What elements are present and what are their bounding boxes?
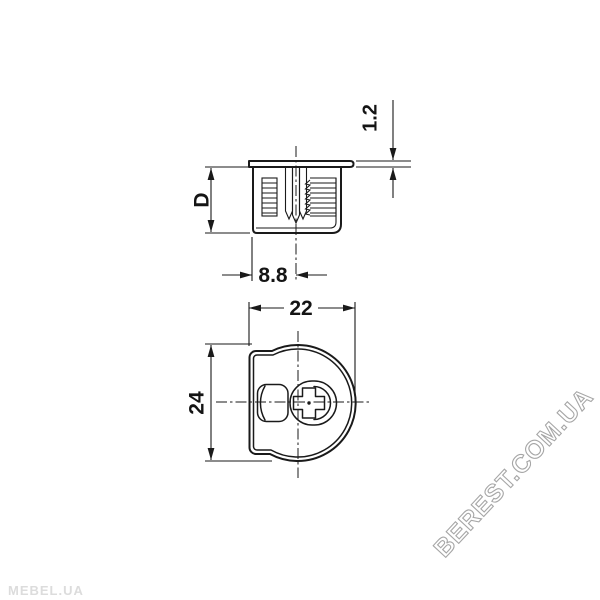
left-rib-block (262, 178, 277, 216)
watermark-berest-com-ua: BEREST.COM.UA (428, 383, 598, 563)
dim-1_2-extension-lines (356, 161, 411, 167)
dim-label-D: D (191, 192, 214, 207)
left-rib-lines (262, 183, 277, 213)
left-thread-ribs (262, 178, 277, 216)
dimension-width: 22 (249, 297, 355, 396)
dim-8_8-arrow-right (240, 272, 252, 279)
bore-strip-right (300, 167, 307, 219)
dowel-window-arc (260, 386, 265, 420)
dim-1_2-arrow-down (390, 148, 397, 160)
body-outline (253, 167, 341, 233)
dim-1_2-arrow-up (390, 168, 397, 180)
dim-22-arrow-left (249, 305, 261, 312)
dimension-flange-thickness: 1.2 (356, 100, 411, 198)
dimension-edge-to-axis: 8.8 (222, 237, 327, 287)
dowel-window (258, 385, 289, 422)
front-outer-outline (250, 345, 356, 461)
flange-outline (249, 161, 354, 167)
watermark-mebel-ua: MEBEL.UA (8, 583, 84, 598)
right-rib-block (310, 178, 336, 216)
dim-label-24: 24 (186, 391, 209, 415)
dim-label-8-8: 8.8 (258, 264, 288, 287)
dim-24-arrow-up (208, 345, 215, 357)
dim-label-1-2: 1.2 (359, 104, 381, 132)
front-view (216, 331, 372, 478)
dim-D-arrow-up (208, 168, 215, 180)
bore-strip-left (286, 167, 293, 219)
technical-drawing-svg: D 1.2 8.8 22 (0, 0, 600, 600)
dim-22-arrow-right (343, 305, 355, 312)
dim-24-arrow-down (208, 448, 215, 460)
dim-label-22: 22 (289, 297, 312, 320)
side-view (249, 146, 354, 282)
dimension-body-height: D (191, 167, 250, 233)
dim-8_8-arrow-left (296, 272, 308, 279)
dim-D-arrow-down (208, 220, 215, 232)
cam-center-dot (307, 401, 310, 404)
cam-inner-arc (314, 387, 331, 420)
drawing-canvas: D 1.2 8.8 22 (0, 0, 600, 600)
right-rib-lines (310, 183, 336, 213)
right-thread-ribs (306, 178, 337, 216)
